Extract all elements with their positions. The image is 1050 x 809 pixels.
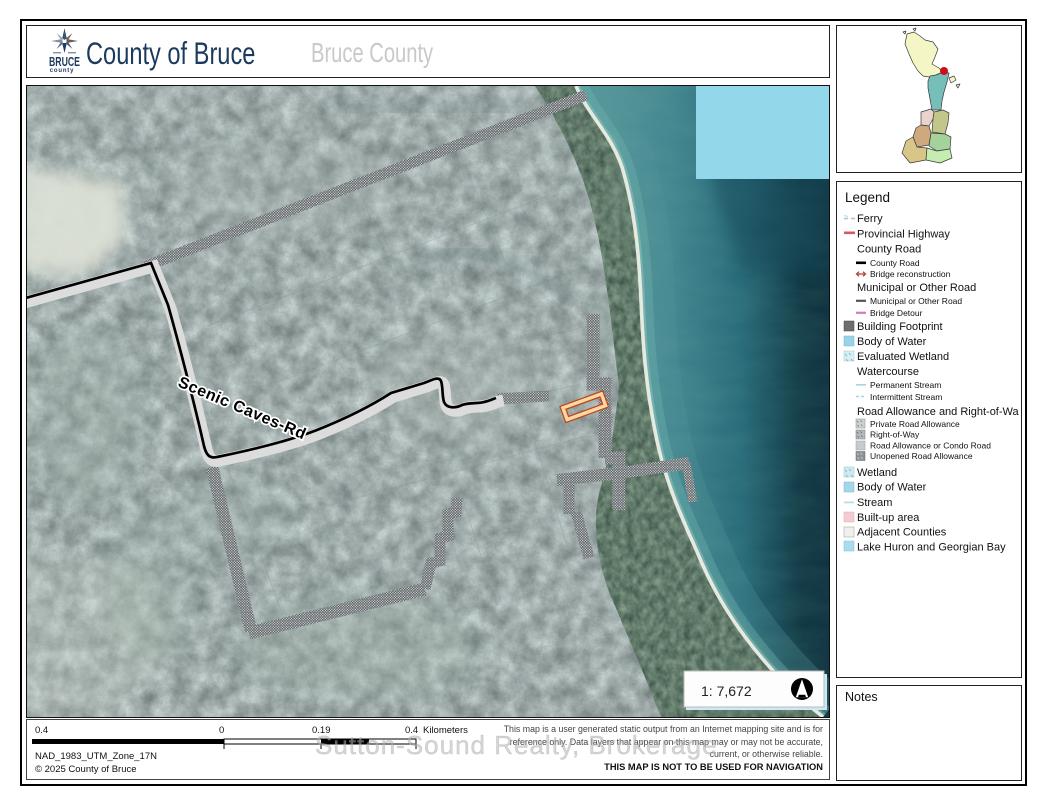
svg-text:Built-up area: Built-up area <box>857 512 920 524</box>
svg-text:Intermittent Stream: Intermittent Stream <box>870 392 942 402</box>
svg-text:County Road: County Road <box>857 244 921 256</box>
svg-text:Road Allowance or Condo Road: Road Allowance or Condo Road <box>870 441 991 451</box>
svg-text:Provincial Highway: Provincial Highway <box>857 229 950 241</box>
svg-text:Ferry: Ferry <box>857 213 883 225</box>
svg-text:Stream: Stream <box>857 497 892 509</box>
svg-text:County Road: County Road <box>870 258 920 268</box>
svg-text:Body of Water: Body of Water <box>857 336 927 348</box>
svg-text:Right-of-Way: Right-of-Way <box>870 430 920 440</box>
svg-text:1: 7,672: 1: 7,672 <box>701 683 752 699</box>
svg-text:Evaluated Wetland: Evaluated Wetland <box>857 351 949 363</box>
svg-text:Private Road Allowance: Private Road Allowance <box>870 419 960 429</box>
svg-text:Unopened Road Allowance: Unopened Road Allowance <box>870 451 973 461</box>
svg-text:Legend: Legend <box>845 190 890 205</box>
svg-text:Wetland: Wetland <box>857 467 897 479</box>
svg-text:Body of Water: Body of Water <box>857 482 927 494</box>
svg-text:Bridge Detour: Bridge Detour <box>870 308 923 318</box>
svg-text:Bridge reconstruction: Bridge reconstruction <box>870 269 951 279</box>
svg-text:Permanent Stream: Permanent Stream <box>870 380 941 390</box>
svg-text:Watercourse: Watercourse <box>857 366 919 378</box>
svg-text:Lake Huron and Georgian Bay: Lake Huron and Georgian Bay <box>857 541 1006 553</box>
svg-text:Municipal or Other Road: Municipal or Other Road <box>870 296 962 306</box>
svg-text:Road Allowance and Right-of-Wa: Road Allowance and Right-of-Wa <box>857 406 1020 418</box>
svg-text:Building Footprint: Building Footprint <box>857 321 943 333</box>
svg-text:Adjacent Counties: Adjacent Counties <box>857 527 947 539</box>
svg-text:Municipal or Other Road: Municipal or Other Road <box>857 282 976 294</box>
